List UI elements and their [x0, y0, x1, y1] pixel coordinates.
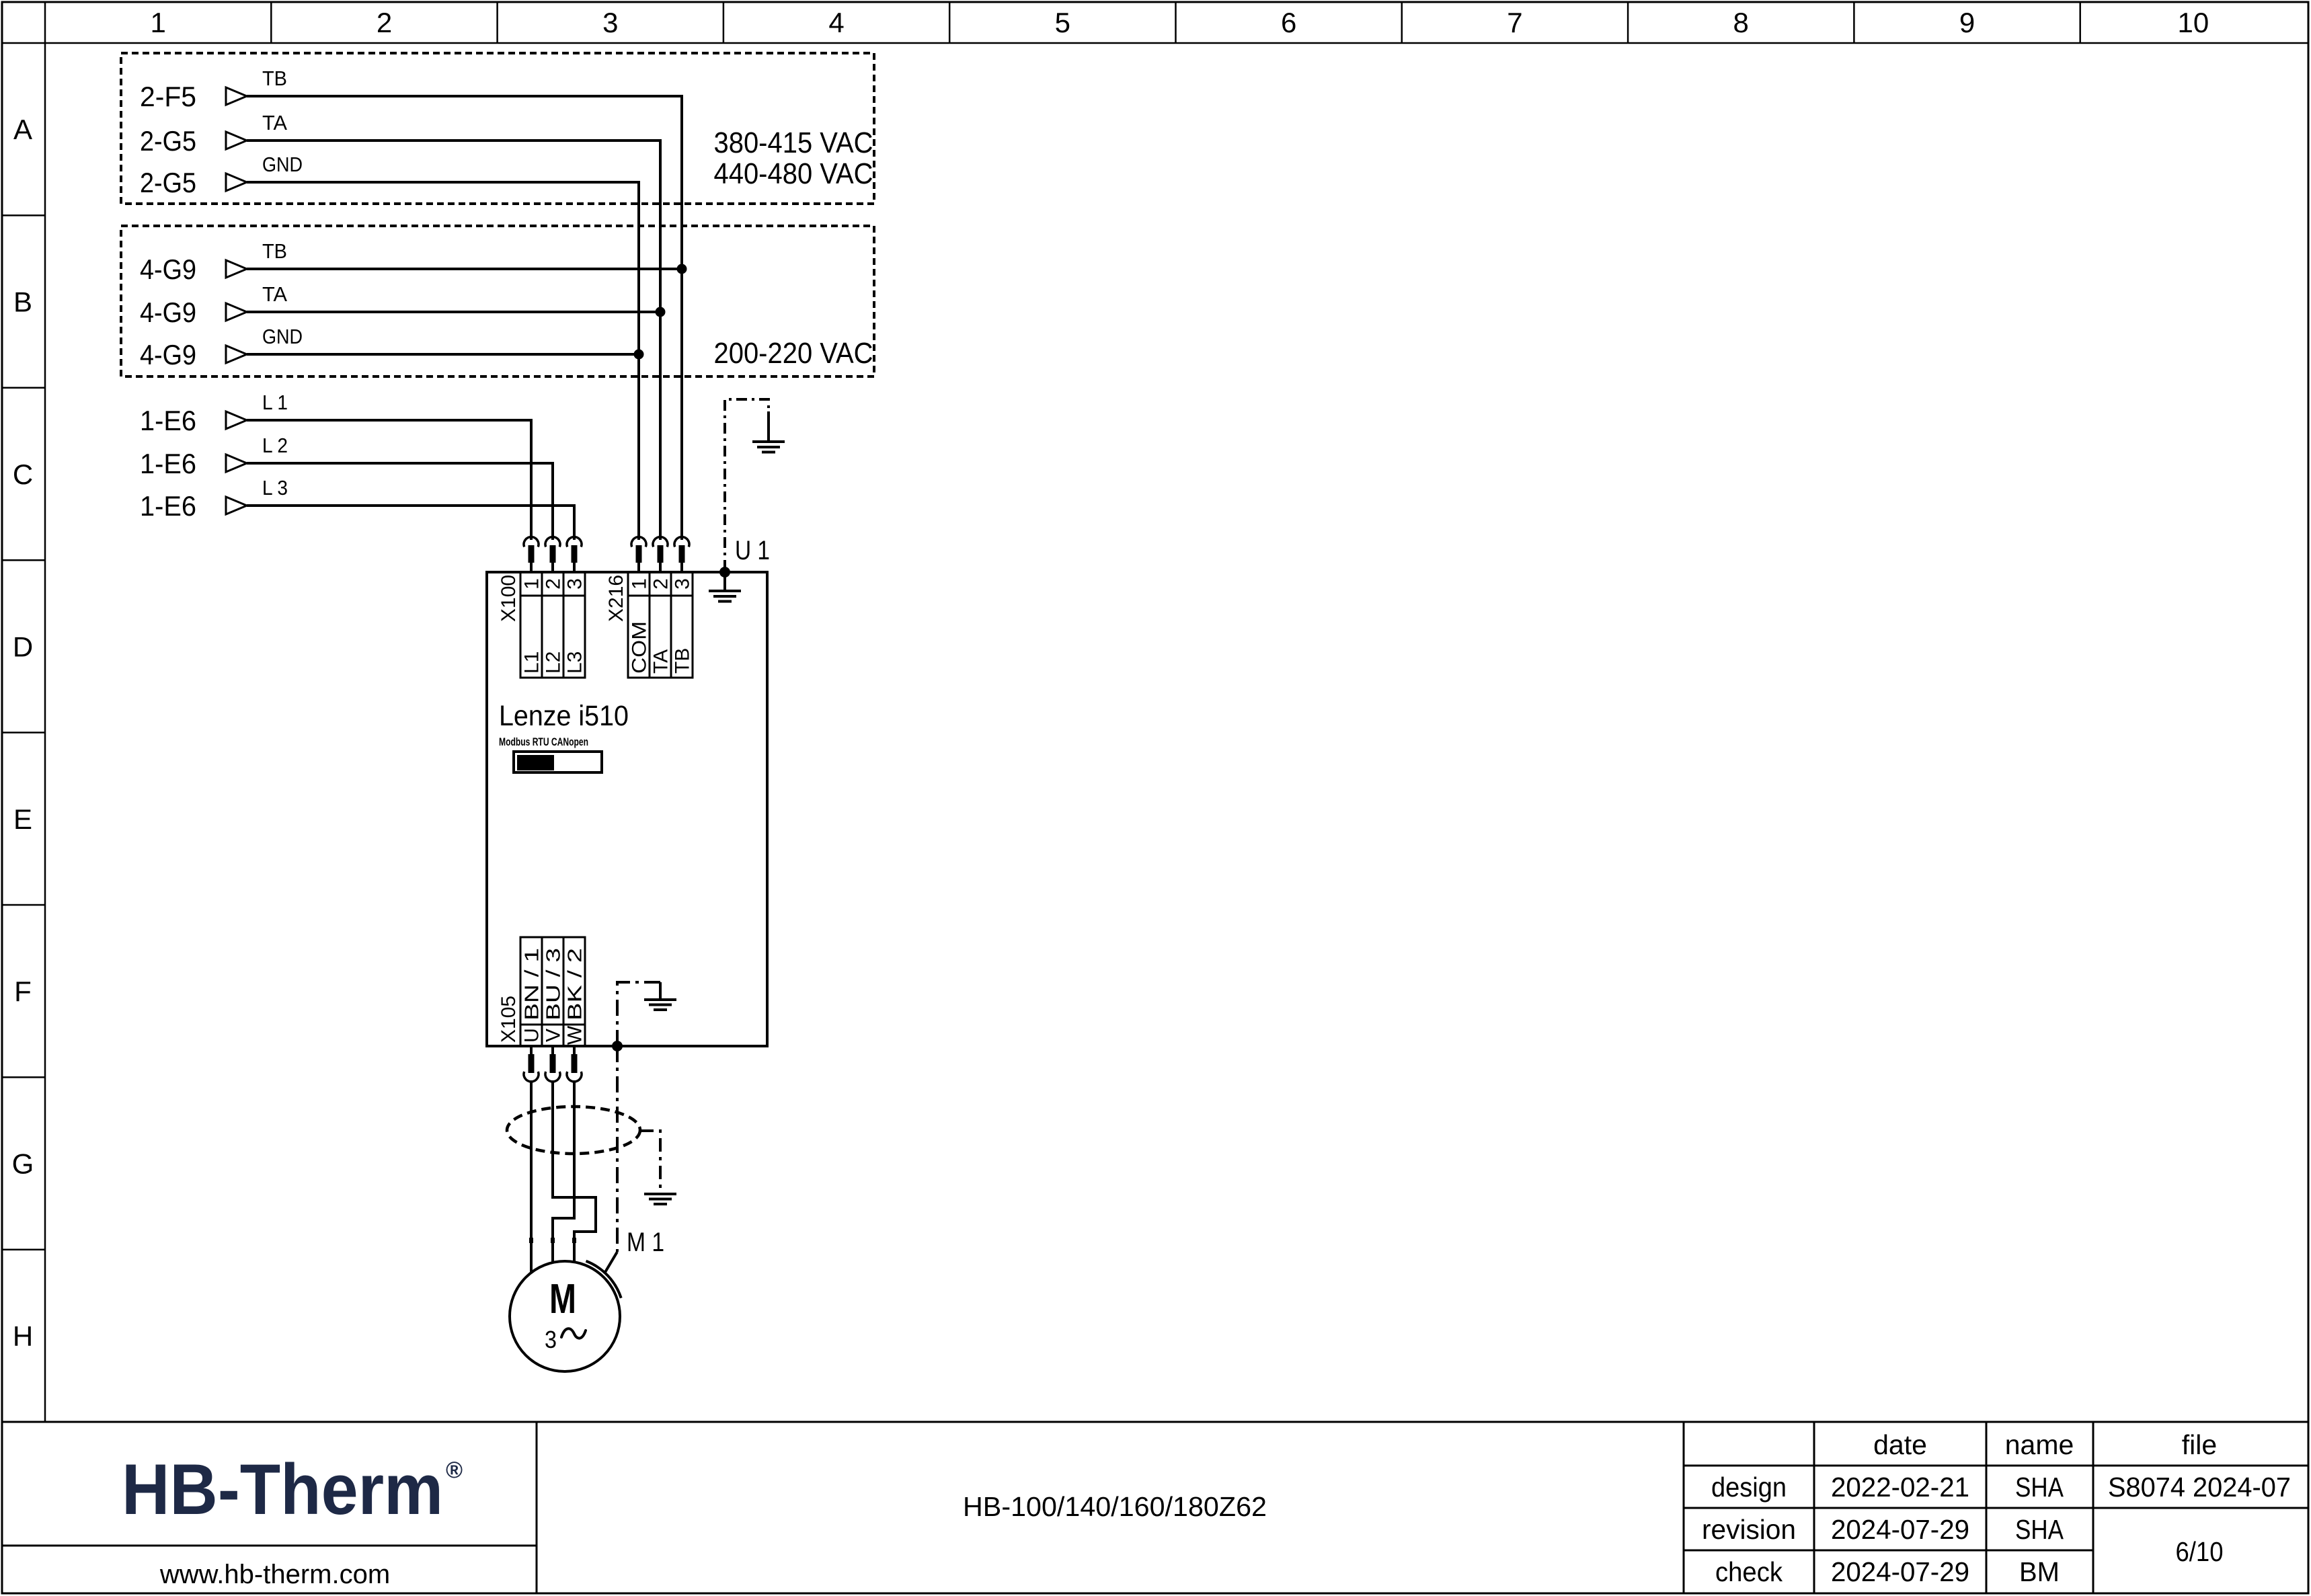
svg-text:4-G9: 4-G9: [140, 296, 196, 328]
svg-text:COM: COM: [629, 621, 651, 674]
svg-text:440-480 VAC: 440-480 VAC: [714, 157, 873, 190]
svg-text:M 1: M 1: [627, 1228, 664, 1257]
svg-text:V: V: [543, 1029, 565, 1042]
svg-text:L1: L1: [521, 651, 543, 674]
svg-text:Modbus RTU CANopen: Modbus RTU CANopen: [499, 735, 588, 748]
svg-text:W: W: [564, 1025, 586, 1045]
svg-text:7: 7: [1507, 7, 1522, 38]
svg-text:BK / 2: BK / 2: [565, 948, 586, 1021]
svg-text:D: D: [13, 631, 33, 662]
svg-text:L 2: L 2: [262, 434, 288, 457]
svg-text:BU / 3: BU / 3: [543, 948, 565, 1021]
svg-text:TA: TA: [262, 111, 287, 134]
svg-text:9: 9: [1959, 7, 1975, 38]
svg-text:5: 5: [1055, 7, 1070, 38]
svg-text:X216: X216: [605, 575, 627, 622]
svg-text:4: 4: [828, 7, 844, 38]
svg-text:TB: TB: [672, 648, 694, 674]
svg-text:®: ®: [446, 1458, 463, 1483]
svg-text:2024-07-29: 2024-07-29: [1831, 1514, 1969, 1545]
svg-text:2-F5: 2-F5: [140, 81, 196, 112]
svg-text:4-G9: 4-G9: [140, 339, 196, 370]
svg-text:3: 3: [602, 7, 618, 38]
svg-text:200-220 VAC: 200-220 VAC: [714, 337, 873, 370]
svg-text:1-E6: 1-E6: [140, 490, 196, 522]
svg-text:C: C: [13, 458, 33, 490]
svg-text:L2: L2: [543, 651, 565, 674]
svg-text:A: A: [13, 114, 32, 145]
svg-text:2024-07-29: 2024-07-29: [1831, 1556, 1969, 1587]
svg-text:2: 2: [543, 578, 565, 590]
svg-text:2: 2: [650, 578, 672, 590]
svg-text:SHA: SHA: [2015, 1514, 2064, 1545]
svg-text:X100: X100: [498, 575, 520, 622]
svg-text:TB: TB: [262, 239, 287, 263]
svg-text:file: file: [2182, 1429, 2217, 1460]
svg-text:6/10: 6/10: [2176, 1536, 2224, 1567]
svg-text:check: check: [1715, 1556, 1783, 1587]
svg-text:1-E6: 1-E6: [140, 405, 196, 436]
svg-text:1-E6: 1-E6: [140, 448, 196, 479]
svg-text:H: H: [13, 1320, 33, 1352]
svg-text:www.hb-therm.com: www.hb-therm.com: [159, 1560, 390, 1589]
svg-text:TA: TA: [650, 649, 672, 674]
svg-text:1: 1: [151, 7, 166, 38]
svg-text:4-G9: 4-G9: [140, 253, 196, 285]
svg-text:GND: GND: [262, 325, 303, 348]
svg-text:BM: BM: [2019, 1556, 2060, 1587]
svg-text:L 1: L 1: [262, 391, 288, 414]
svg-text:8: 8: [1733, 7, 1749, 38]
svg-text:E: E: [13, 803, 32, 835]
svg-text:1: 1: [521, 578, 543, 590]
svg-text:revision: revision: [1702, 1514, 1796, 1545]
svg-text:M: M: [549, 1276, 576, 1322]
svg-text:TA: TA: [262, 282, 287, 306]
svg-text:HB-Therm: HB-Therm: [122, 1449, 443, 1529]
svg-text:2: 2: [377, 7, 392, 38]
svg-text:3: 3: [672, 578, 694, 590]
svg-text:3: 3: [564, 578, 586, 590]
svg-text:BN / 1: BN / 1: [522, 948, 543, 1021]
svg-text:Lenze i510: Lenze i510: [499, 700, 629, 732]
svg-text:B: B: [13, 286, 32, 318]
svg-text:10: 10: [2178, 7, 2209, 38]
svg-text:GND: GND: [262, 153, 303, 176]
svg-text:design: design: [1711, 1472, 1787, 1503]
svg-text:date: date: [1873, 1429, 1927, 1460]
svg-text:F: F: [14, 975, 32, 1007]
svg-text:TB: TB: [262, 67, 287, 90]
svg-text:2-G5: 2-G5: [140, 125, 196, 157]
svg-text:S8074 2024-07: S8074 2024-07: [2108, 1472, 2291, 1503]
svg-text:6: 6: [1281, 7, 1296, 38]
svg-text:U 1: U 1: [735, 536, 770, 565]
svg-text:X105: X105: [498, 996, 520, 1043]
svg-text:name: name: [2005, 1429, 2074, 1460]
svg-text:U: U: [521, 1028, 543, 1043]
svg-text:G: G: [12, 1148, 34, 1180]
svg-text:3: 3: [545, 1326, 557, 1353]
svg-text:L3: L3: [564, 651, 586, 674]
svg-text:SHA: SHA: [2015, 1472, 2064, 1503]
svg-text:2-G5: 2-G5: [140, 167, 196, 198]
svg-text:1: 1: [629, 578, 651, 590]
svg-text:L 3: L 3: [262, 476, 288, 500]
svg-text:2022-02-21: 2022-02-21: [1831, 1472, 1969, 1503]
svg-text:380-415 VAC: 380-415 VAC: [714, 126, 873, 159]
svg-text:HB-100/140/160/180Z62: HB-100/140/160/180Z62: [963, 1491, 1267, 1522]
